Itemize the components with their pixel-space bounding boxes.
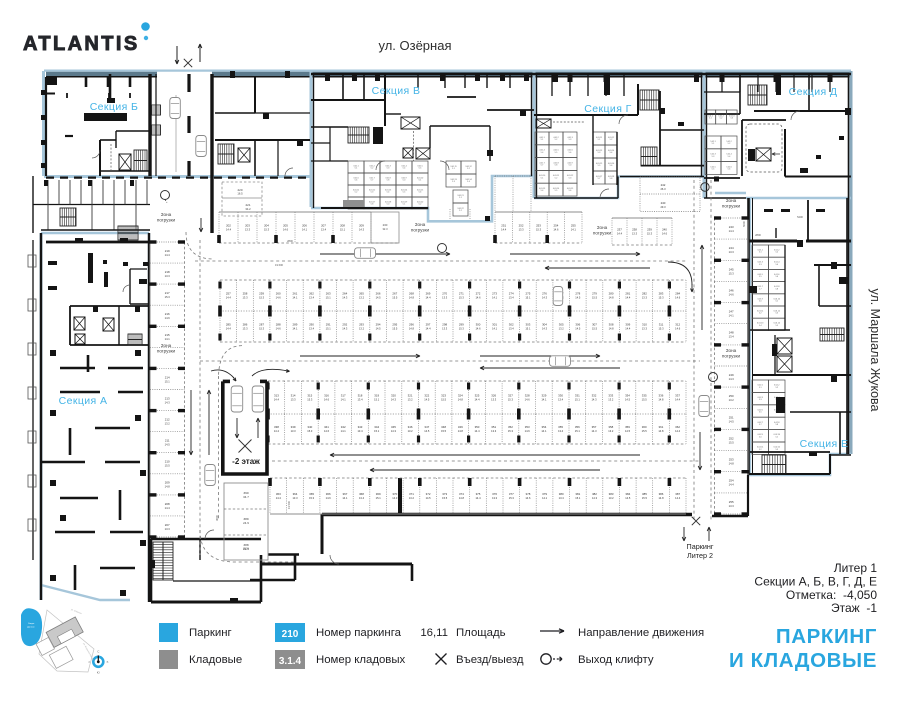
svg-text:14.3: 14.3	[359, 228, 365, 232]
svg-text:15.5: 15.5	[642, 496, 648, 500]
svg-text:13.3: 13.3	[242, 327, 248, 331]
svg-text:Этаж -1: Этаж -1	[831, 601, 877, 615]
svg-text:15.5: 15.5	[592, 296, 598, 300]
svg-text:14.3: 14.3	[391, 429, 397, 433]
svg-text:5.0: 5.0	[569, 165, 572, 167]
svg-text:15.5: 15.5	[165, 464, 171, 468]
svg-text:13.3: 13.3	[491, 398, 497, 402]
svg-text:290: 290	[309, 323, 314, 327]
svg-text:13.4: 13.4	[357, 398, 363, 402]
svg-text:279: 279	[592, 292, 597, 296]
svg-text:14.4: 14.4	[675, 429, 681, 433]
svg-text:Зона: Зона	[161, 343, 172, 348]
svg-text:324: 324	[458, 394, 463, 398]
svg-text:Секция А: Секция А	[59, 395, 108, 407]
svg-text:14.6: 14.6	[475, 296, 481, 300]
svg-text:5.3: 5.3	[712, 156, 715, 158]
svg-text:15.3: 15.3	[259, 296, 265, 300]
svg-text:5.2: 5.2	[720, 118, 723, 120]
svg-text:302: 302	[509, 323, 514, 327]
svg-text:14.8: 14.8	[458, 398, 464, 402]
svg-text:Направление движения: Направление движения	[578, 627, 704, 639]
svg-text:13.3: 13.3	[291, 429, 297, 433]
svg-text:209: 209	[359, 224, 364, 228]
svg-text:257: 257	[226, 292, 231, 296]
svg-text:337: 337	[675, 394, 680, 398]
svg-text:Въезд/выезд: Въезд/выезд	[456, 654, 524, 666]
svg-text:14.8: 14.8	[459, 496, 465, 500]
svg-text:ATLANTIS: ATLANTIS	[23, 33, 140, 55]
svg-text:5.5: 5.5	[712, 169, 715, 171]
svg-text:5.4: 5.4	[775, 264, 778, 266]
svg-text:5.3: 5.3	[775, 449, 778, 451]
svg-text:Секция Б: Секция Б	[90, 101, 139, 113]
svg-text:5.4: 5.4	[541, 190, 544, 192]
svg-text:15.1: 15.1	[374, 398, 380, 402]
svg-text:14.3: 14.3	[165, 400, 171, 404]
svg-text:5.4: 5.4	[541, 152, 544, 154]
svg-text:14.4: 14.4	[675, 398, 681, 402]
svg-text:330: 330	[558, 394, 563, 398]
svg-text:14.8: 14.8	[458, 429, 464, 433]
svg-text:14.5: 14.5	[625, 429, 631, 433]
svg-text:14.4: 14.4	[425, 296, 431, 300]
svg-text:14.8: 14.8	[658, 496, 664, 500]
svg-text:214: 214	[165, 375, 170, 379]
svg-text:15.3: 15.3	[459, 296, 465, 300]
svg-text:359: 359	[625, 425, 630, 429]
svg-text:313: 313	[274, 394, 279, 398]
svg-text:3.1.4: 3.1.4	[279, 656, 302, 667]
svg-text:294: 294	[376, 323, 381, 327]
svg-text:15.3: 15.3	[259, 327, 265, 331]
svg-text:346: 346	[408, 425, 413, 429]
svg-text:14.4: 14.4	[729, 229, 735, 233]
svg-text:14.8: 14.8	[658, 429, 664, 433]
svg-text:301: 301	[492, 323, 497, 327]
svg-text:5.1: 5.1	[759, 252, 762, 254]
svg-text:287: 287	[259, 323, 264, 327]
svg-text:15.1: 15.1	[575, 398, 581, 402]
svg-text:5.1: 5.1	[598, 139, 601, 141]
svg-text:276: 276	[542, 292, 547, 296]
svg-text:14.4: 14.4	[617, 232, 623, 236]
svg-text:242: 242	[661, 183, 666, 187]
svg-text:345: 345	[391, 425, 396, 429]
svg-text:14.5: 14.5	[426, 496, 432, 500]
svg-text:5.4: 5.4	[728, 156, 731, 158]
svg-text:348: 348	[441, 425, 446, 429]
svg-text:5.2: 5.2	[775, 252, 778, 254]
svg-text:278: 278	[575, 292, 580, 296]
svg-text:5.6: 5.6	[355, 180, 358, 182]
svg-text:14.3: 14.3	[729, 377, 735, 381]
svg-text:349: 349	[458, 425, 463, 429]
svg-text:14.4: 14.4	[425, 327, 431, 331]
svg-text:5.1: 5.1	[419, 180, 422, 182]
svg-text:13.3: 13.3	[519, 228, 525, 232]
svg-text:5.5: 5.5	[403, 192, 406, 194]
svg-text:15.3: 15.3	[509, 496, 515, 500]
svg-text:318: 318	[358, 394, 363, 398]
svg-text:5.5: 5.5	[775, 325, 778, 327]
svg-text:14.3: 14.3	[591, 429, 597, 433]
svg-text:И КЛАДОВЫЕ: И КЛАДОВЫЕ	[729, 649, 877, 672]
svg-text:367: 367	[342, 492, 347, 496]
svg-text:344: 344	[374, 425, 379, 429]
svg-text:252: 252	[729, 436, 734, 440]
svg-text:243: 243	[729, 225, 734, 229]
svg-text:283: 283	[659, 292, 664, 296]
svg-text:-2 этаж: -2 этаж	[232, 457, 260, 466]
svg-text:15.3: 15.3	[459, 327, 465, 331]
svg-text:14.5: 14.5	[424, 429, 430, 433]
svg-text:Ю: Ю	[97, 670, 100, 674]
svg-text:387: 387	[675, 492, 680, 496]
svg-text:15.3: 15.3	[536, 228, 542, 232]
svg-text:255: 255	[729, 500, 734, 504]
svg-text:5.8: 5.8	[371, 204, 374, 206]
svg-text:15.3: 15.3	[508, 398, 514, 402]
svg-text:14.1: 14.1	[541, 398, 547, 402]
svg-text:333: 333	[608, 394, 613, 398]
svg-text:5.2: 5.2	[467, 168, 470, 170]
svg-text:15.1: 15.1	[340, 228, 346, 232]
svg-text:15.1: 15.1	[165, 379, 171, 383]
svg-text:13.3: 13.3	[729, 250, 735, 254]
svg-text:285: 285	[226, 323, 231, 327]
svg-text:331: 331	[575, 394, 580, 398]
svg-text:14.4: 14.4	[675, 496, 681, 500]
svg-text:13.2: 13.2	[165, 422, 171, 426]
svg-text:385: 385	[642, 492, 647, 496]
svg-text:Зона: Зона	[726, 348, 737, 353]
svg-text:269: 269	[426, 292, 431, 296]
svg-text:5.5: 5.5	[759, 276, 762, 278]
svg-text:340: 340	[307, 425, 312, 429]
svg-text:263: 263	[326, 292, 331, 296]
svg-text:14.3: 14.3	[591, 398, 597, 402]
svg-text:272: 272	[476, 292, 481, 296]
svg-text:288: 288	[276, 323, 281, 327]
svg-text:5.5: 5.5	[419, 168, 422, 170]
svg-text:5400: 5400	[797, 215, 803, 219]
svg-text:351: 351	[491, 425, 496, 429]
svg-text:282: 282	[642, 292, 647, 296]
svg-text:34.7: 34.7	[243, 495, 249, 499]
svg-text:14.8: 14.8	[609, 296, 615, 300]
svg-text:260: 260	[276, 292, 281, 296]
svg-text:14.5: 14.5	[376, 296, 382, 300]
svg-text:347: 347	[424, 425, 429, 429]
svg-text:15.5: 15.5	[729, 440, 735, 444]
svg-text:211: 211	[165, 439, 170, 443]
svg-text:15.1: 15.1	[376, 496, 382, 500]
svg-text:274: 274	[509, 292, 514, 296]
svg-text:357: 357	[592, 425, 597, 429]
svg-text:14.1: 14.1	[292, 296, 298, 300]
svg-text:15.1: 15.1	[575, 429, 581, 433]
svg-text:295: 295	[392, 323, 397, 327]
svg-text:14.1: 14.1	[302, 228, 308, 232]
svg-text:8500: 8500	[243, 547, 249, 551]
svg-text:14.6: 14.6	[283, 228, 289, 232]
svg-text:249: 249	[729, 373, 734, 377]
svg-text:14.6: 14.6	[276, 327, 282, 331]
svg-text:13.4: 13.4	[309, 327, 315, 331]
svg-text:220: 220	[237, 188, 242, 192]
svg-text:244: 244	[729, 246, 734, 250]
svg-text:13.3: 13.3	[442, 327, 448, 331]
svg-text:14.4: 14.4	[274, 429, 280, 433]
svg-text:14.1: 14.1	[542, 496, 548, 500]
svg-text:261: 261	[292, 292, 297, 296]
svg-text:360: 360	[642, 425, 647, 429]
svg-text:352: 352	[508, 425, 513, 429]
svg-text:Секция Д: Секция Д	[789, 86, 838, 98]
svg-text:13 500: 13 500	[287, 500, 291, 508]
svg-text:353: 353	[525, 425, 530, 429]
svg-text:275: 275	[525, 292, 530, 296]
svg-text:219: 219	[165, 249, 170, 253]
svg-text:14.6: 14.6	[326, 496, 332, 500]
svg-text:Зона: Зона	[726, 198, 737, 203]
svg-text:15.1: 15.1	[326, 327, 332, 331]
svg-text:270: 270	[442, 292, 447, 296]
svg-text:358: 358	[608, 425, 613, 429]
svg-text:362: 362	[675, 425, 680, 429]
svg-text:338: 338	[274, 425, 279, 429]
svg-text:210: 210	[282, 629, 299, 640]
svg-text:369: 369	[376, 492, 381, 496]
svg-text:Литер 2: Литер 2	[687, 551, 713, 560]
svg-text:5.0: 5.0	[387, 204, 390, 206]
svg-text:286: 286	[243, 323, 248, 327]
svg-text:207: 207	[321, 224, 326, 228]
svg-text:361: 361	[658, 425, 663, 429]
svg-text:381: 381	[575, 492, 580, 496]
svg-text:319: 319	[374, 394, 379, 398]
svg-text:14.1: 14.1	[341, 398, 347, 402]
svg-text:погрузки: погрузки	[157, 217, 176, 222]
svg-text:5.4: 5.4	[403, 168, 406, 170]
svg-text:240: 240	[662, 228, 667, 232]
svg-text:14.6: 14.6	[525, 496, 531, 500]
svg-text:13.3: 13.3	[729, 504, 735, 508]
svg-text:Секция Е: Секция Е	[800, 438, 849, 450]
svg-text:14.4: 14.4	[165, 506, 171, 510]
svg-text:13.3: 13.3	[491, 429, 497, 433]
svg-text:5.8: 5.8	[610, 178, 613, 180]
svg-text:14.1: 14.1	[492, 296, 498, 300]
svg-text:14.3: 14.3	[391, 398, 397, 402]
svg-text:14.1: 14.1	[165, 337, 171, 341]
svg-text:280: 280	[609, 292, 614, 296]
svg-text:375: 375	[476, 492, 481, 496]
svg-text:383: 383	[609, 492, 614, 496]
svg-text:376: 376	[492, 492, 497, 496]
svg-text:Секция В: Секция В	[372, 85, 421, 97]
svg-text:14.4: 14.4	[226, 228, 232, 232]
svg-text:303: 303	[525, 323, 530, 327]
svg-text:299: 299	[459, 323, 464, 327]
svg-text:14.4: 14.4	[226, 296, 232, 300]
svg-text:13.3: 13.3	[442, 296, 448, 300]
svg-text:14.4: 14.4	[501, 228, 507, 232]
svg-text:5.0: 5.0	[759, 436, 762, 438]
svg-text:364: 364	[293, 492, 298, 496]
svg-text:305: 305	[559, 323, 564, 327]
svg-text:372: 372	[426, 492, 431, 496]
svg-text:315: 315	[307, 394, 312, 398]
svg-text:Зона: Зона	[161, 212, 172, 217]
svg-text:247: 247	[729, 310, 734, 314]
svg-text:254: 254	[553, 224, 558, 228]
svg-text:5.2: 5.2	[355, 192, 358, 194]
svg-text:ул. Озёрная: ул. Озёрная	[378, 38, 451, 53]
svg-text:Зона: Зона	[597, 225, 608, 230]
svg-text:14.1: 14.1	[492, 327, 498, 331]
svg-text:5.2: 5.2	[775, 387, 778, 389]
svg-text:15.3: 15.3	[647, 232, 653, 236]
svg-text:14.8: 14.8	[609, 327, 615, 331]
svg-text:13.2: 13.2	[409, 496, 415, 500]
svg-text:14.8: 14.8	[409, 327, 415, 331]
svg-text:34.2: 34.2	[245, 207, 251, 211]
svg-text:253: 253	[729, 458, 734, 462]
svg-text:13.4: 13.4	[558, 429, 564, 433]
svg-text:5.1: 5.1	[775, 301, 778, 303]
svg-text:5.5: 5.5	[759, 412, 762, 414]
svg-text:238: 238	[632, 228, 637, 232]
svg-text:15.3: 15.3	[658, 327, 664, 331]
svg-text:266: 266	[376, 292, 381, 296]
svg-text:13.2: 13.2	[359, 327, 365, 331]
svg-text:5.1: 5.1	[452, 168, 455, 170]
svg-text:13.2: 13.2	[408, 398, 414, 402]
svg-text:309: 309	[625, 323, 630, 327]
svg-text:Озеро: Озеро	[28, 623, 35, 625]
svg-text:14.3: 14.3	[342, 327, 348, 331]
svg-text:14.5: 14.5	[575, 327, 581, 331]
svg-text:13.2: 13.2	[729, 398, 735, 402]
svg-text:217: 217	[165, 291, 170, 295]
svg-text:297: 297	[426, 323, 431, 327]
svg-text:239: 239	[647, 228, 652, 232]
svg-text:14.1: 14.1	[729, 314, 735, 318]
svg-text:Выход клифту: Выход клифту	[578, 654, 654, 666]
svg-text:316: 316	[324, 394, 329, 398]
svg-text:Долгое: Долгое	[27, 627, 35, 629]
svg-text:368: 368	[359, 492, 364, 496]
svg-text:5.1: 5.1	[541, 177, 544, 179]
svg-text:341: 341	[324, 425, 329, 429]
svg-text:14.4: 14.4	[729, 483, 735, 487]
svg-text:14.5: 14.5	[575, 296, 581, 300]
svg-text:5.2: 5.2	[555, 177, 558, 179]
svg-text:14.4: 14.4	[474, 398, 480, 402]
svg-text:311: 311	[659, 323, 664, 327]
svg-text:284: 284	[675, 292, 680, 296]
svg-text:5.6: 5.6	[569, 152, 572, 154]
svg-text:5.2: 5.2	[759, 313, 762, 315]
svg-text:14.1: 14.1	[571, 228, 577, 232]
svg-text:Паркинг: Паркинг	[687, 542, 714, 551]
svg-text:15.5: 15.5	[592, 327, 598, 331]
svg-text:293: 293	[359, 323, 364, 327]
svg-text:246: 246	[729, 288, 734, 292]
svg-text:5.1: 5.1	[355, 168, 358, 170]
svg-text:314: 314	[291, 394, 296, 398]
svg-text:5.3: 5.3	[387, 168, 390, 170]
svg-text:5.6: 5.6	[728, 169, 731, 171]
svg-text:208: 208	[340, 224, 345, 228]
svg-text:погрузки: погрузки	[722, 203, 741, 208]
svg-text:15.3: 15.3	[165, 295, 171, 299]
svg-text:16.5: 16.5	[237, 192, 243, 196]
svg-text:379: 379	[542, 492, 547, 496]
svg-text:Зона: Зона	[415, 222, 426, 227]
svg-text:14.5: 14.5	[165, 443, 171, 447]
svg-text:13.4: 13.4	[357, 429, 363, 433]
svg-text:5.4: 5.4	[467, 181, 470, 183]
svg-text:14.6: 14.6	[729, 292, 735, 296]
svg-text:32.3: 32.3	[382, 227, 388, 231]
svg-text:374: 374	[459, 492, 464, 496]
svg-text:5.3: 5.3	[598, 152, 601, 154]
svg-text:14.1: 14.1	[341, 429, 347, 433]
svg-text:14.3: 14.3	[542, 327, 548, 331]
svg-text:15.5: 15.5	[642, 429, 648, 433]
svg-text:5.8: 5.8	[775, 288, 778, 290]
svg-text:240: 240	[661, 201, 666, 205]
svg-text:5.3: 5.3	[452, 181, 455, 183]
svg-text:221: 221	[245, 203, 250, 207]
svg-text:281: 281	[625, 292, 630, 296]
svg-text:15.1: 15.1	[575, 496, 581, 500]
svg-text:14.3: 14.3	[542, 296, 548, 300]
svg-text:5.1: 5.1	[541, 139, 544, 141]
svg-text:5.2: 5.2	[759, 449, 762, 451]
svg-text:13.3: 13.3	[291, 398, 297, 402]
svg-text:Номер паркинга: Номер паркинга	[316, 627, 402, 639]
svg-text:273: 273	[492, 292, 497, 296]
svg-text:380: 380	[559, 492, 564, 496]
svg-text:5.8: 5.8	[555, 165, 558, 167]
svg-text:14.6: 14.6	[553, 228, 559, 232]
svg-text:14.6: 14.6	[324, 398, 330, 402]
svg-text:339: 339	[291, 425, 296, 429]
svg-text:Паркинг: Паркинг	[189, 627, 232, 639]
svg-text:15.3: 15.3	[309, 496, 315, 500]
svg-text:15.5: 15.5	[441, 429, 447, 433]
svg-text:5.3: 5.3	[569, 177, 572, 179]
svg-text:5.5: 5.5	[555, 152, 558, 154]
svg-text:323: 323	[441, 394, 446, 398]
svg-text:271: 271	[459, 292, 464, 296]
svg-text:13.2: 13.2	[608, 398, 614, 402]
svg-text:15.5: 15.5	[441, 398, 447, 402]
svg-text:ПАРКИНГ: ПАРКИНГ	[776, 625, 877, 648]
svg-text:5000: 5000	[742, 221, 746, 227]
svg-text:14.4: 14.4	[625, 296, 631, 300]
svg-text:14.6: 14.6	[675, 327, 681, 331]
svg-text:13.3: 13.3	[642, 327, 648, 331]
svg-text:5.5: 5.5	[555, 190, 558, 192]
svg-text:208: 208	[165, 502, 170, 506]
svg-text:363: 363	[276, 492, 281, 496]
svg-text:298: 298	[442, 323, 447, 327]
